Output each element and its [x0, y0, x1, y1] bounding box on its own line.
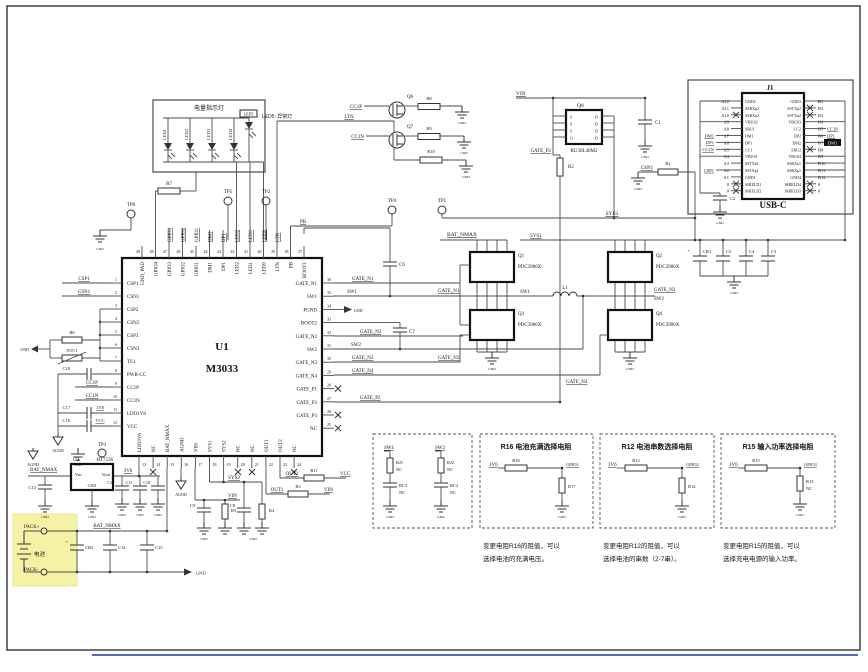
- usb-left-inner: GND2SSRXp2SSRXn2VBUS2SBU1DM1DP1CC1VBUS1S…: [745, 99, 761, 194]
- resistor-rj1: [387, 458, 393, 473]
- r12-box-title: R12 电池串数选择电阻: [622, 442, 693, 451]
- usb-pin-id-6: A6: [724, 140, 730, 145]
- q2-top-stubs: [615, 240, 645, 252]
- q8-ref: Q8: [577, 103, 584, 109]
- usb-pin-id-5: A7: [724, 134, 730, 139]
- rc3-label: RC3: [399, 483, 408, 488]
- resistor-rj2: [438, 458, 444, 473]
- gnd-icon: [459, 160, 473, 172]
- pb-ltn-routing: PB LTN: [277, 115, 394, 246]
- r17-label: R17: [568, 484, 576, 489]
- resistor-r1: [658, 169, 678, 175]
- q7-mosfet-icon: [389, 132, 405, 148]
- q6-label: Q6: [407, 95, 414, 100]
- power-stage: BAT_NMAX SYS1 Q1 PDC3906X Q2 PDC3906X Q3…: [304, 228, 845, 402]
- vin-net-label: VIN: [516, 91, 526, 97]
- u1-top-pin-names: GND_PADGPIO4GPIO3GPIO2GPIO1DM1DP1LED2LED…: [141, 261, 308, 285]
- q8-pin-1: S: [570, 122, 572, 127]
- sheet-border: [7, 6, 860, 650]
- u1-left-pin-nums: 123456789101112: [113, 277, 117, 425]
- usb-dp1-left: DP1: [706, 140, 714, 145]
- resistor-r10: [420, 157, 442, 163]
- usb-pin-id-9: B10: [818, 161, 826, 166]
- c14-label: C14: [118, 545, 126, 550]
- gnd-label: GND: [558, 515, 566, 519]
- u1-pin-bottom-10: OUT2: [279, 439, 284, 452]
- u1-pin-left-4: CSP3: [127, 334, 139, 339]
- gnd-icon: [434, 500, 448, 512]
- gnd-icon: [638, 140, 652, 152]
- usb-pin-id-2: A10: [721, 113, 729, 118]
- u1-top-net-8: LTN: [276, 232, 281, 242]
- r12-caption-2: 选择电池的串数（2-7串）。: [603, 554, 681, 563]
- agnd-icon: [176, 478, 186, 489]
- usb-cc1n-left: CC1N: [702, 147, 714, 152]
- u1-pin-top-11: PB: [290, 261, 295, 268]
- c8-label: C8: [230, 503, 236, 508]
- usb-pin-id-8: A4: [724, 154, 730, 159]
- no-connect-icon: [150, 469, 156, 475]
- usb-dm1-right: DM1: [828, 140, 838, 145]
- u1-pin-bottom-8: NC: [251, 444, 256, 452]
- u1-pin-top-12: BOOT1: [303, 262, 308, 279]
- sw2-label-b: SW2: [654, 297, 665, 302]
- led5-label: LED5: [244, 112, 254, 117]
- q3-bottom-stubs: [477, 340, 507, 352]
- gnd-label: GND: [462, 175, 470, 179]
- usb-pin-id-1: A11: [721, 106, 729, 111]
- csn1-net-label: CSN1: [641, 166, 654, 171]
- u1-pin-num-5: 44: [204, 249, 208, 254]
- gnd-arrow-icon: [184, 569, 192, 576]
- r15-box-title: R15 输入功率选择电阻: [743, 442, 814, 451]
- usb-dp1-right: DP1: [827, 133, 835, 138]
- u1-pin-top-10: LTN: [276, 262, 281, 272]
- r8-label: R8: [426, 96, 432, 101]
- q8-part: RU30L40M2: [571, 149, 598, 154]
- u1-pin-top-4: GPIO1: [195, 262, 200, 277]
- r15-caption-2: 选择充电电源的输入功率。: [723, 554, 801, 563]
- u1-pin-num-7: 42: [231, 249, 235, 254]
- gnd-icon: [727, 276, 741, 288]
- q8-pin-0: S: [570, 115, 572, 120]
- q8-pin-1: D: [595, 122, 598, 127]
- usb-pin-id-13: 0: [818, 189, 821, 194]
- u1-pin-top-7: LED2: [236, 262, 241, 275]
- u1-pin-num-2: 47: [163, 249, 167, 254]
- usb-pin-id-11: B12: [818, 175, 826, 180]
- usb-pin-name-9: SSRXn1: [787, 161, 801, 166]
- cb2-label: CB2: [85, 545, 93, 550]
- u1-top-net-0: GPIO3: [168, 227, 173, 242]
- q1-ref: Q1: [518, 254, 525, 259]
- gate-n3-label-a: GATE_N3: [352, 356, 374, 361]
- agnd-label: AGND: [27, 462, 39, 467]
- gate-n1-label-a: GATE_N1: [352, 277, 374, 282]
- q2-body: [608, 252, 652, 282]
- usb-pin-name-4: SBU1: [745, 127, 755, 132]
- u1-pin-num-10: 26: [327, 409, 331, 414]
- resistor-r13: [797, 476, 803, 491]
- agnd-icon: [53, 434, 63, 445]
- rj1-nc: NC: [396, 467, 402, 472]
- u1-pin-left-11: VCC: [127, 425, 138, 430]
- u1-pin-num-3: 46: [177, 249, 181, 254]
- u1-pin-bottom-3: AGND: [180, 437, 185, 452]
- u1-pin-top-6: DP1: [222, 262, 227, 271]
- usb-pin-name-2: SSTXn2: [787, 113, 801, 118]
- ltn-net-label: LTN: [344, 115, 354, 120]
- u1-pin-bottom-0: LDO3V6: [138, 433, 143, 452]
- gnd-label: GND: [458, 121, 466, 125]
- q8-left-stubs: [553, 116, 566, 137]
- u1-right-pin-nums: 363534333231302928272625: [327, 277, 331, 427]
- usb-pin-name-4: CC2: [794, 127, 801, 132]
- led-labels: LED1LED2LED3LED4: [162, 128, 233, 140]
- agnd-label: AGND: [175, 492, 187, 497]
- usb-pin-name-9: SSTXn1: [745, 161, 759, 166]
- u1-pin-num-11: 38: [285, 249, 289, 254]
- bat-nmax-label2: BAT_NMAX: [30, 468, 58, 473]
- u1-pin-top-8: LED1: [249, 262, 254, 275]
- c9-label: C9: [190, 503, 196, 508]
- q4-top-stubs: [615, 296, 645, 310]
- r5-label: R5: [231, 508, 237, 513]
- cc1n-net-label2: CC1N: [86, 394, 99, 399]
- testpoints: TP6 GND TP5 TP2 TP4 TP1 TP3: [93, 190, 447, 457]
- usb-pin-id-9: A3: [724, 161, 730, 166]
- resistor-r5: [222, 504, 228, 519]
- resistor-r3: [288, 491, 308, 497]
- v3v6-net-label: 3V6: [124, 469, 133, 474]
- usb-pin-id-0: A12: [721, 99, 729, 104]
- r15-selection-box: R15 输入功率选择电阻 3V6 R15 GPIO3 R13 NC GND 变更…: [721, 434, 835, 563]
- u1-pin-num-12: 37: [298, 249, 302, 254]
- usb-pin-name-6: DP1: [745, 140, 752, 145]
- gnd-label: GND: [20, 347, 29, 352]
- resistor-r9: [418, 134, 440, 140]
- gnd-label: GND: [154, 513, 162, 517]
- u1-pin-num-1: 35: [327, 290, 331, 295]
- gnd-label: GND: [626, 367, 634, 371]
- u1-left-components: CSP1 CSN1 R6 NTC1 GND C18 CC1P CC1N C17 …: [20, 277, 110, 467]
- usb-right-ids: B1B2B3B4B5B6B7B8B9B10B11B1200: [818, 99, 826, 194]
- u1-pin-num-9: 22: [269, 462, 273, 467]
- u1-top-net-5: LED2: [236, 229, 241, 242]
- gnd-icon: [38, 500, 52, 512]
- usb-pin-name-0: GND2: [745, 99, 756, 104]
- c1-label: C1: [655, 121, 661, 126]
- r16-caption-2: 选择电池的充满电压。: [483, 554, 548, 563]
- r13-label: R13: [806, 479, 814, 484]
- u1-pin-num-5: 6: [115, 342, 117, 347]
- c7-label: C7: [409, 330, 415, 335]
- u1-pin-num-5: 31: [327, 343, 331, 348]
- r13-nc: NC: [806, 486, 812, 491]
- gnd-label: GND: [437, 515, 445, 519]
- cc1p-net-label: CC1P: [350, 105, 362, 110]
- gate-p2-net-label: GATE_P2: [530, 149, 551, 154]
- u1-bottom-pin-names: LDO3V6NCBAT_NMAXAGNDVINSYS1SYS2NCNCOUT1O…: [138, 424, 298, 452]
- tp6-pad: [127, 210, 135, 218]
- u1-pin-left-6: TS1: [127, 360, 136, 365]
- r4-label: R4: [269, 508, 275, 513]
- ntc1-label: NTC1: [66, 348, 77, 353]
- u1-pin-right-9: GATE_P2: [296, 401, 317, 406]
- resistor-r14: [679, 478, 685, 493]
- u1-pin-num-2: 15: [170, 462, 174, 467]
- sys-cap-bank: + CB1 C5 C4 C3 GND: [687, 240, 777, 295]
- r11-label: R11: [310, 468, 317, 473]
- r10-label: R10: [427, 149, 435, 154]
- u1-pin-num-7: 8: [115, 368, 117, 373]
- u1-pin-num-6: 19: [227, 462, 231, 467]
- u1-pin-top-5: DM1: [209, 262, 214, 273]
- u1-pin-num-7: 20: [241, 462, 245, 467]
- usb-pin-name-12: SHIELD1: [745, 182, 761, 187]
- u1-pin-num-8: 9: [115, 381, 117, 386]
- resistor-r8: [418, 104, 440, 110]
- usb-pin-name-2: SSRXn2: [745, 113, 759, 118]
- usb-pin-id-1: B2: [818, 106, 823, 111]
- led-indicator-section: 电量指示灯 LED1LED2LED3LED4 LED5 LED5: 异常灯: [153, 100, 292, 246]
- q8-pin-3: D: [595, 136, 598, 141]
- gnd-icon: [115, 498, 129, 510]
- gnd-label: GND: [634, 187, 642, 191]
- q3-body: [470, 310, 514, 340]
- led-label-1: LED2: [184, 129, 189, 140]
- u1-left-pin-names: CSP1CSN1CSP2CSN2CSP3CSN3TS1PWR-CCCC1PCC1…: [127, 282, 147, 430]
- u1-pin-num-11: 12: [113, 420, 117, 425]
- no-connect-icon: [235, 469, 241, 475]
- cc1n-net-label: CC1N: [351, 135, 364, 140]
- tp4-label: TP4: [388, 199, 397, 204]
- usb-pin-id-13: 0: [727, 189, 730, 194]
- u1-pin-left-10: LDO1V8: [127, 412, 146, 417]
- r14-label: R14: [688, 484, 696, 489]
- r3-label: R3: [295, 484, 301, 489]
- r12-rail-label: 3V6: [608, 463, 617, 468]
- u1-pin-num-9: 40: [258, 249, 262, 254]
- u1-pin-num-3: 33: [327, 317, 331, 322]
- u1-pin-bottom-4: VIN: [194, 443, 199, 452]
- u1-pin-num-7: 29: [327, 369, 331, 374]
- led-label-0: LED1: [162, 129, 167, 140]
- u1-body: [122, 258, 322, 456]
- r12-label: R12: [632, 458, 640, 463]
- boxa-sw2-label: SW2: [435, 446, 446, 451]
- usb-pin-name-5: DP2: [794, 134, 801, 139]
- q8-left-letters: SSSG: [570, 115, 573, 141]
- schematic-canvas: 电量指示灯 LED1LED2LED3LED4 LED5 LED5: 异常灯 R7…: [0, 0, 868, 667]
- battery-label: 电池: [34, 550, 46, 558]
- u1-pin-num-6: 7: [115, 355, 117, 360]
- gnd-icon: [255, 522, 269, 534]
- tp3-pad: [98, 449, 106, 457]
- gnd-icon: [455, 106, 469, 118]
- input-switch-section: VIN GATE_P2 SSSG DDDD Q8 RU30L40M2 R2 GN…: [442, 91, 695, 402]
- q8-right-stubs: [602, 116, 614, 137]
- agnd-label: AGND: [52, 448, 64, 453]
- usb-pin-name-10: SSRXp1: [787, 168, 801, 173]
- gate-n3-label-b: GATE_N3: [438, 356, 460, 361]
- r1-label: R1: [665, 161, 670, 166]
- tp5-label: TP5: [224, 190, 233, 195]
- pack-plus-label: PACK+: [24, 525, 40, 530]
- gnd-icon: [133, 498, 147, 510]
- u1-pin-num-2: 34: [327, 303, 331, 308]
- gnd-icon: [85, 500, 99, 512]
- u1-pin-right-1: SW1: [307, 295, 318, 300]
- q1-body: [470, 252, 514, 282]
- c11-label: C11: [125, 480, 132, 485]
- q1-top-stubs: [477, 240, 507, 252]
- resistor-r11: [304, 475, 324, 481]
- u1-pin-left-7: PWR-CC: [127, 373, 147, 378]
- no-connect-icon: [249, 469, 255, 475]
- q4-ref: Q4: [656, 312, 663, 317]
- rc3-nc: NC: [399, 490, 405, 495]
- r9-label: R9: [426, 126, 432, 131]
- usb-c-section: J1 USB-C A12A11A10A9A8A7A6A5A4A3A2A100 G…: [688, 80, 853, 240]
- resistor-r17: [559, 478, 565, 493]
- u1-pin-bottom-7: NC: [237, 444, 242, 452]
- r7-label: R7: [166, 182, 172, 187]
- usb-pin-id-6: B7: [818, 140, 824, 145]
- vin-net-label2: VIN: [228, 494, 237, 499]
- u1-pin-num-10: 11: [113, 407, 117, 412]
- usb-pin-name-1: SSTXp2: [787, 106, 801, 111]
- gnd-icon: [793, 498, 807, 510]
- c6-label: C6: [399, 263, 405, 268]
- sw1-label-b: SW1: [520, 290, 531, 295]
- u1-pin-left-9: CC1N: [127, 399, 140, 404]
- q1-bottom-stubs: [477, 282, 507, 296]
- gnd-label: GND: [249, 537, 257, 541]
- u1-top-net-6: LED1: [249, 229, 254, 242]
- u1-pin-num-1: 48: [150, 249, 154, 254]
- c10-label: C10: [143, 480, 150, 485]
- schematic-sheet: 电量指示灯 LED1LED2LED3LED4 LED5 LED5: 异常灯 R7…: [0, 0, 868, 667]
- u1-pin-right-5: SW2: [307, 348, 318, 353]
- r15-gpio-label: GPIO3: [804, 462, 818, 467]
- u1-pin-num-10: 39: [271, 249, 275, 254]
- gate-n2-label-b: GATE_N2: [654, 288, 676, 293]
- gnd-icon: [93, 230, 107, 242]
- resistor-r12: [625, 465, 647, 471]
- usb-dm1-left: DM1: [704, 133, 714, 138]
- gnd-label: GND: [88, 515, 96, 519]
- gnd-label: GND: [354, 308, 363, 313]
- usb-pin-name-1: SSRXp2: [745, 106, 759, 111]
- vcc-net-label: VCC: [95, 418, 104, 423]
- u1-pin-num-1: 2: [115, 290, 117, 295]
- tp4-pad: [388, 206, 396, 214]
- u1-pin-left-3: CSN2: [127, 321, 140, 326]
- q8-pin-0: D: [595, 115, 598, 120]
- c17-label: C17: [62, 405, 70, 410]
- u1-pin-num-8: 41: [244, 249, 248, 254]
- u1-pin-num-8: 21: [255, 462, 259, 467]
- resistor-r6: [62, 337, 82, 343]
- usb-pin-name-13: SHIELD3: [785, 189, 801, 194]
- usb-pin-id-11: A1: [724, 175, 730, 180]
- u1-pin-right-7: GATE_N4: [296, 374, 318, 379]
- u1-pin-bottom-6: SYS2: [223, 440, 228, 452]
- r16-box-title: R16 电池充满选择电阻: [501, 442, 572, 451]
- c5-label: C5: [726, 249, 732, 254]
- c3-label: C3: [771, 249, 777, 254]
- tp5-pad: [224, 197, 232, 205]
- resistor-r7: [158, 188, 180, 194]
- usb-pin-name-7: CC1: [745, 147, 752, 152]
- l1-label: L1: [562, 286, 568, 291]
- u1-top-net-4: DP1: [222, 233, 227, 242]
- usb-right-inner: GND3SSTXp2SSTXn2VBUS3CC2DP2DM2SBU2VBUS4S…: [785, 99, 801, 194]
- r2-label: R2: [568, 165, 574, 170]
- r6-label: R6: [69, 330, 75, 335]
- gnd-label: GND: [641, 155, 649, 159]
- usb-pin-id-0: B1: [818, 99, 823, 104]
- q2-part: PDC3906X: [656, 265, 680, 270]
- sw1-label-a: SW1: [347, 290, 358, 295]
- resistor-r4: [259, 504, 265, 519]
- c15-label: C15: [155, 545, 163, 550]
- l1-inductor-icon: [553, 292, 577, 296]
- usb-pin-id-12: 0: [818, 182, 821, 187]
- u1-pin-right-11: NC: [310, 427, 318, 432]
- q1-part: PDC3906X: [518, 265, 542, 270]
- u1-top-net-7: LED0: [263, 229, 268, 242]
- led-label-2: LED3: [206, 128, 211, 140]
- battery-caps: + CB2 C14 C15: [65, 531, 163, 572]
- c18-label: C18: [62, 366, 70, 371]
- q3-part: PDC3906X: [518, 323, 542, 328]
- usb-pin-id-5: B6: [818, 134, 824, 139]
- sw-spare-box: SW1 RJ1 NC RC3 NC GND SW2 RJ2 NC RC2 NC …: [373, 434, 472, 528]
- u1-pin-bottom-11: NC: [293, 444, 298, 452]
- pgnd-arrow-icon: [344, 306, 352, 313]
- gate-n1-label-b: GATE_N1: [438, 289, 460, 294]
- u1-pin-right-2: PGND: [303, 308, 317, 313]
- rc2-nc: NC: [450, 490, 456, 495]
- r15-rail-label: 3V6: [729, 463, 738, 468]
- usb-pin-name-5: DM1: [745, 134, 753, 139]
- rj2-label: RJ2: [447, 460, 454, 465]
- u1-pin-right-10: GATE_P3: [296, 414, 317, 419]
- gnd-label: GND: [488, 367, 496, 371]
- u2-pin-vin: Vin: [75, 472, 82, 477]
- usb-pin-id-2: B3: [818, 113, 824, 118]
- q8-right-letters: DDDD: [595, 115, 598, 141]
- cc1p-net-label2: CC1P: [86, 381, 98, 386]
- u1-bottom-pin-nums: 131415161718192021222324: [142, 462, 301, 467]
- u1-pin-num-4: 32: [327, 330, 331, 335]
- u2-ref: U2: [73, 458, 80, 463]
- gnd-icon: [485, 352, 499, 364]
- led-box-title: 电量指示灯: [194, 104, 224, 112]
- gnd-icon: [237, 522, 251, 534]
- u1-pin-num-11: 24: [297, 462, 301, 467]
- j1-ref: J1: [767, 84, 775, 92]
- cb1-polarity: +: [687, 248, 690, 253]
- r16-gpio-label: GPIO1: [566, 462, 579, 467]
- u1-pin-right-8: GATE_P1: [296, 388, 317, 393]
- agnd-icon: [28, 448, 38, 459]
- q6-mosfet-icon: [389, 102, 405, 118]
- tp3-label: TP3: [98, 443, 107, 448]
- u1-pin-bottom-5: SYS1: [209, 440, 214, 452]
